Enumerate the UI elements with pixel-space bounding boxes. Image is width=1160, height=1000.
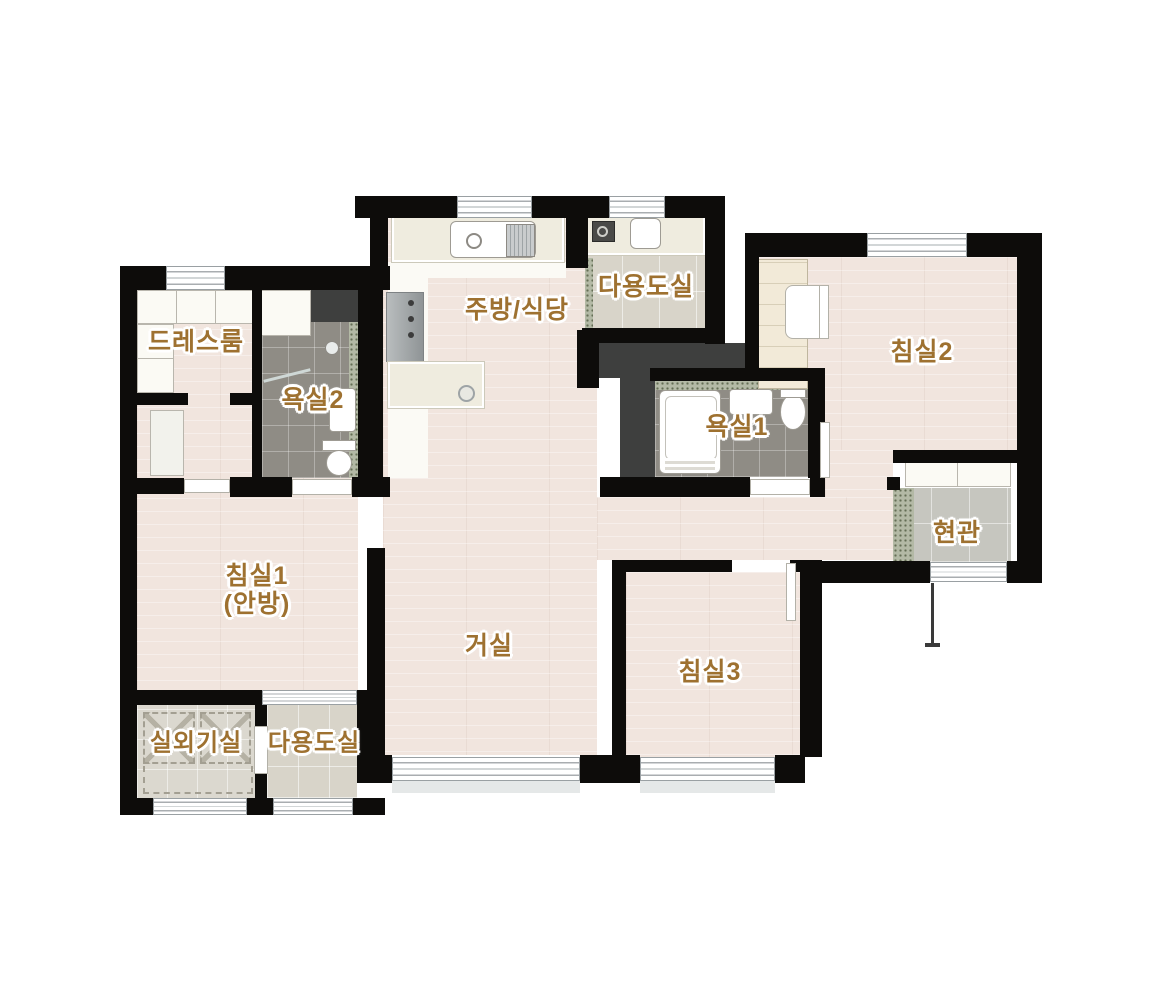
range-burner-icon (408, 316, 414, 322)
wall (745, 257, 759, 372)
bedroom3-door-leaf (786, 563, 796, 621)
room-label-text: 침실1 (224, 562, 291, 590)
room-label-dressroom: 드레스룸 (148, 328, 244, 356)
wall (360, 755, 392, 783)
bedroom2-door-leaf (819, 285, 829, 339)
wall (810, 477, 825, 497)
bedroom1-door (184, 479, 230, 493)
wall (800, 560, 822, 757)
window-kitchen (457, 196, 532, 218)
kitchen-sink-drainer (506, 224, 535, 257)
wall (626, 560, 732, 572)
entrance-door-handle-icon (925, 643, 940, 647)
wall (230, 477, 292, 497)
wall (745, 233, 867, 257)
bathroom2-toilet-bowl (326, 450, 352, 476)
bedroom1-dresser (150, 410, 184, 476)
utility-divider-door (254, 726, 268, 774)
cabinet-divider (215, 291, 216, 323)
entrance-door-swing (931, 583, 934, 645)
room-label-bedroom3: 침실3 (679, 658, 742, 686)
window-dressroom (166, 266, 225, 290)
room-label-bathroom2: 욕실2 (282, 386, 345, 414)
window-bedroom3 (640, 757, 775, 781)
wall (1007, 561, 1042, 583)
ac-service-area (143, 766, 253, 794)
wall (612, 560, 626, 757)
floor-bedroom2-hall (825, 450, 893, 497)
wall (566, 196, 588, 268)
wall (600, 477, 750, 497)
room-label-utility-top: 다용도실 (598, 273, 694, 301)
entrance-shoe-closet (905, 461, 1011, 487)
room-label-text: (안방) (224, 590, 291, 618)
wall (580, 755, 640, 783)
bathroom1-door-threshold (750, 479, 810, 495)
room-label-outdoor-unit: 실외기실 (150, 731, 242, 758)
room-label-text: 욕실2 (282, 386, 345, 414)
cabinet-divider (138, 358, 173, 359)
room-label-living: 거실 (465, 632, 513, 660)
wall (367, 548, 385, 693)
room-label-bathroom1: 욕실1 (706, 413, 769, 441)
window-bedroom1-utility (262, 690, 357, 705)
wall (370, 218, 388, 290)
range-burner-icon (408, 332, 414, 338)
wall (818, 561, 930, 583)
kitchen-work-floor-bottom (388, 408, 428, 478)
room-label-text: 다용도실 (598, 273, 694, 301)
wall (1017, 233, 1042, 583)
floor-drain-icon (458, 385, 475, 402)
range-burner-icon (408, 300, 414, 306)
kitchen-work-floor-top (428, 262, 566, 278)
room-label-text: 거실 (465, 632, 513, 660)
room-label-text: 드레스룸 (148, 328, 244, 356)
wall (352, 477, 390, 497)
room-label-entrance: 현관 (933, 519, 981, 547)
bathroom1-sink (729, 389, 773, 415)
wall (582, 328, 713, 343)
window-sill (392, 781, 580, 793)
wall (893, 450, 1017, 463)
dressroom-cabinet-top (137, 290, 255, 324)
floor-plan: 드레스룸 욕실2 주방/식당 다용도실 침실2 욕실1 현관 침실1 (안방) … (0, 0, 1160, 1000)
kitchen-faucet-icon (466, 233, 482, 249)
cabinet-divider (176, 291, 177, 323)
wall (650, 368, 812, 381)
entrance-threshold (893, 488, 914, 562)
room-label-text: 주방/식당 (465, 296, 569, 324)
wall (120, 798, 153, 815)
kitchen-range (386, 292, 424, 362)
wall (247, 798, 273, 815)
utility-top-threshold (585, 258, 593, 328)
window-sill (640, 781, 775, 793)
shower-head-icon (325, 341, 339, 355)
wall (353, 798, 385, 815)
bathroom1-door-leaf (820, 422, 830, 478)
wall (225, 266, 390, 290)
shoe-closet-divider (957, 462, 958, 486)
bathroom1-toilet-bowl (780, 394, 806, 430)
window-utility-bottom (273, 798, 353, 815)
wall (230, 393, 262, 405)
window-utility-top (609, 196, 665, 218)
room-label-text: 욕실1 (706, 413, 769, 441)
entrance-door-sill (930, 562, 1007, 582)
gas-valve-dial-icon (597, 226, 608, 237)
window-bedroom2 (867, 233, 967, 257)
wall (705, 214, 725, 344)
bathroom1-toilet-tank (780, 389, 806, 398)
room-label-text: 침실2 (891, 338, 954, 366)
window-living (392, 757, 580, 781)
room-label-text: 실외기실 (150, 730, 242, 757)
room-label-text: 현관 (933, 519, 981, 547)
room-label-text: 다용도실 (268, 730, 360, 757)
wall (355, 196, 457, 218)
bathroom2-door (292, 479, 352, 495)
room-label-bedroom2: 침실2 (891, 338, 954, 366)
room-label-kitchen-dining: 주방/식당 (465, 296, 569, 324)
wall (120, 266, 137, 815)
wall (358, 290, 383, 480)
wall (887, 477, 900, 490)
wall (137, 393, 188, 405)
utility-sink (630, 218, 661, 249)
wall (120, 690, 262, 705)
wall (775, 755, 805, 783)
floor-corridor (597, 497, 893, 560)
duct-shaft-vertical (620, 378, 656, 478)
window-outdoor-unit (153, 798, 247, 815)
room-label-bedroom1: 침실1 (안방) (224, 562, 291, 618)
room-label-utility-bottom: 다용도실 (268, 731, 360, 758)
bathtub-steps (665, 458, 715, 470)
wall (252, 290, 262, 480)
dressroom-cabinet-corner (255, 290, 311, 336)
room-label-text: 침실3 (679, 658, 742, 686)
